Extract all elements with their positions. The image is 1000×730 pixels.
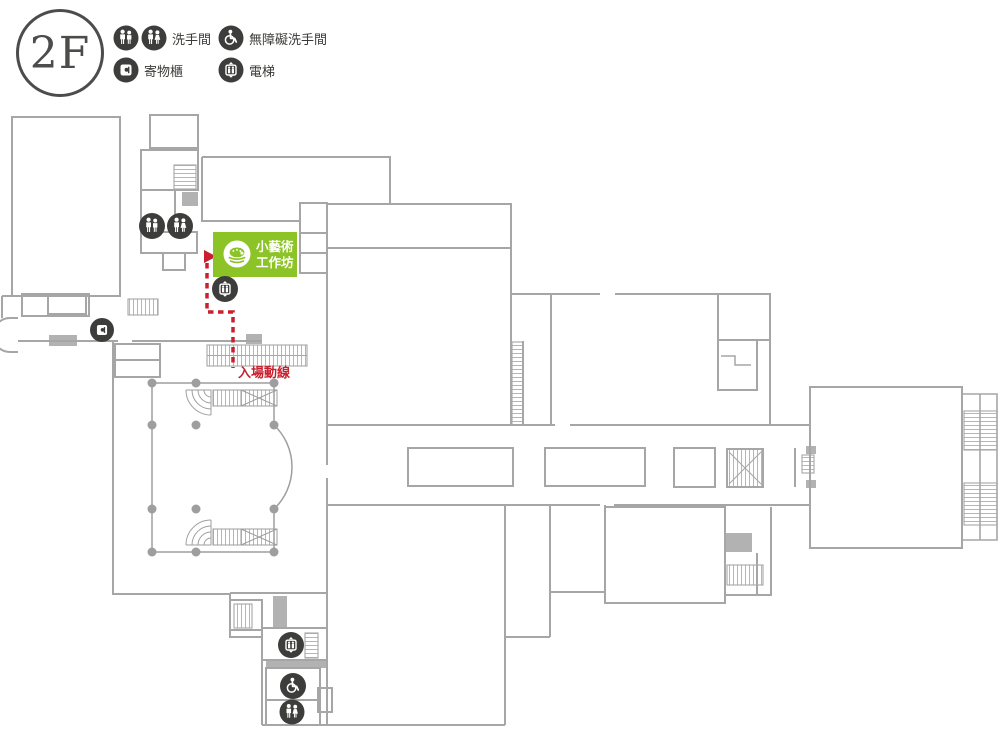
map-elevator-icon-south xyxy=(278,632,304,658)
map-restroom-icon-south xyxy=(280,700,305,725)
legend-locker: 寄物櫃 xyxy=(113,57,183,83)
map-elevator-icon-workshop xyxy=(212,276,238,302)
legend-elevator-label: 電梯 xyxy=(249,61,275,80)
theater-hall xyxy=(148,379,293,557)
floor-badge: 2F xyxy=(16,9,104,97)
workshop-label-line1: 小藝術 xyxy=(255,239,294,254)
workshop-icon xyxy=(224,241,251,268)
map-restroom-men-icon xyxy=(139,213,165,239)
walls xyxy=(0,115,997,725)
restroom-family-icon xyxy=(141,25,167,51)
entry-route-label: 入場動線 xyxy=(238,365,291,380)
map-restroom-family-icon xyxy=(167,213,193,239)
accessible-restroom-icon xyxy=(218,25,244,51)
map-accessible-restroom-icon xyxy=(280,673,306,699)
workshop-highlight: 小藝術 工作坊 xyxy=(213,232,297,277)
fan-stairs-north xyxy=(186,390,277,415)
legend-locker-label: 寄物櫃 xyxy=(144,61,183,80)
legend-elevator: 電梯 xyxy=(218,57,275,83)
floor-label: 2F xyxy=(30,28,91,79)
elevator-icon xyxy=(218,57,244,83)
legend-accessible: 無障礙洗手間 xyxy=(218,25,327,51)
floorplan-svg: 入場動線 小藝術 工作坊 xyxy=(0,0,1000,730)
fan-stairs-south xyxy=(186,520,277,545)
legend-restroom: 洗手間 xyxy=(113,25,211,51)
map-locker-icon xyxy=(90,318,114,342)
floor-map-page: 入場動線 小藝術 工作坊 xyxy=(0,0,1000,730)
legend-restroom-label: 洗手間 xyxy=(172,29,211,48)
legend-accessible-label: 無障礙洗手間 xyxy=(249,29,327,48)
locker-icon xyxy=(113,57,139,83)
workshop-label-line2: 工作坊 xyxy=(256,255,294,270)
map-icons xyxy=(90,213,306,725)
restroom-men-icon xyxy=(113,25,139,51)
wall-fill-blocks xyxy=(49,192,816,668)
